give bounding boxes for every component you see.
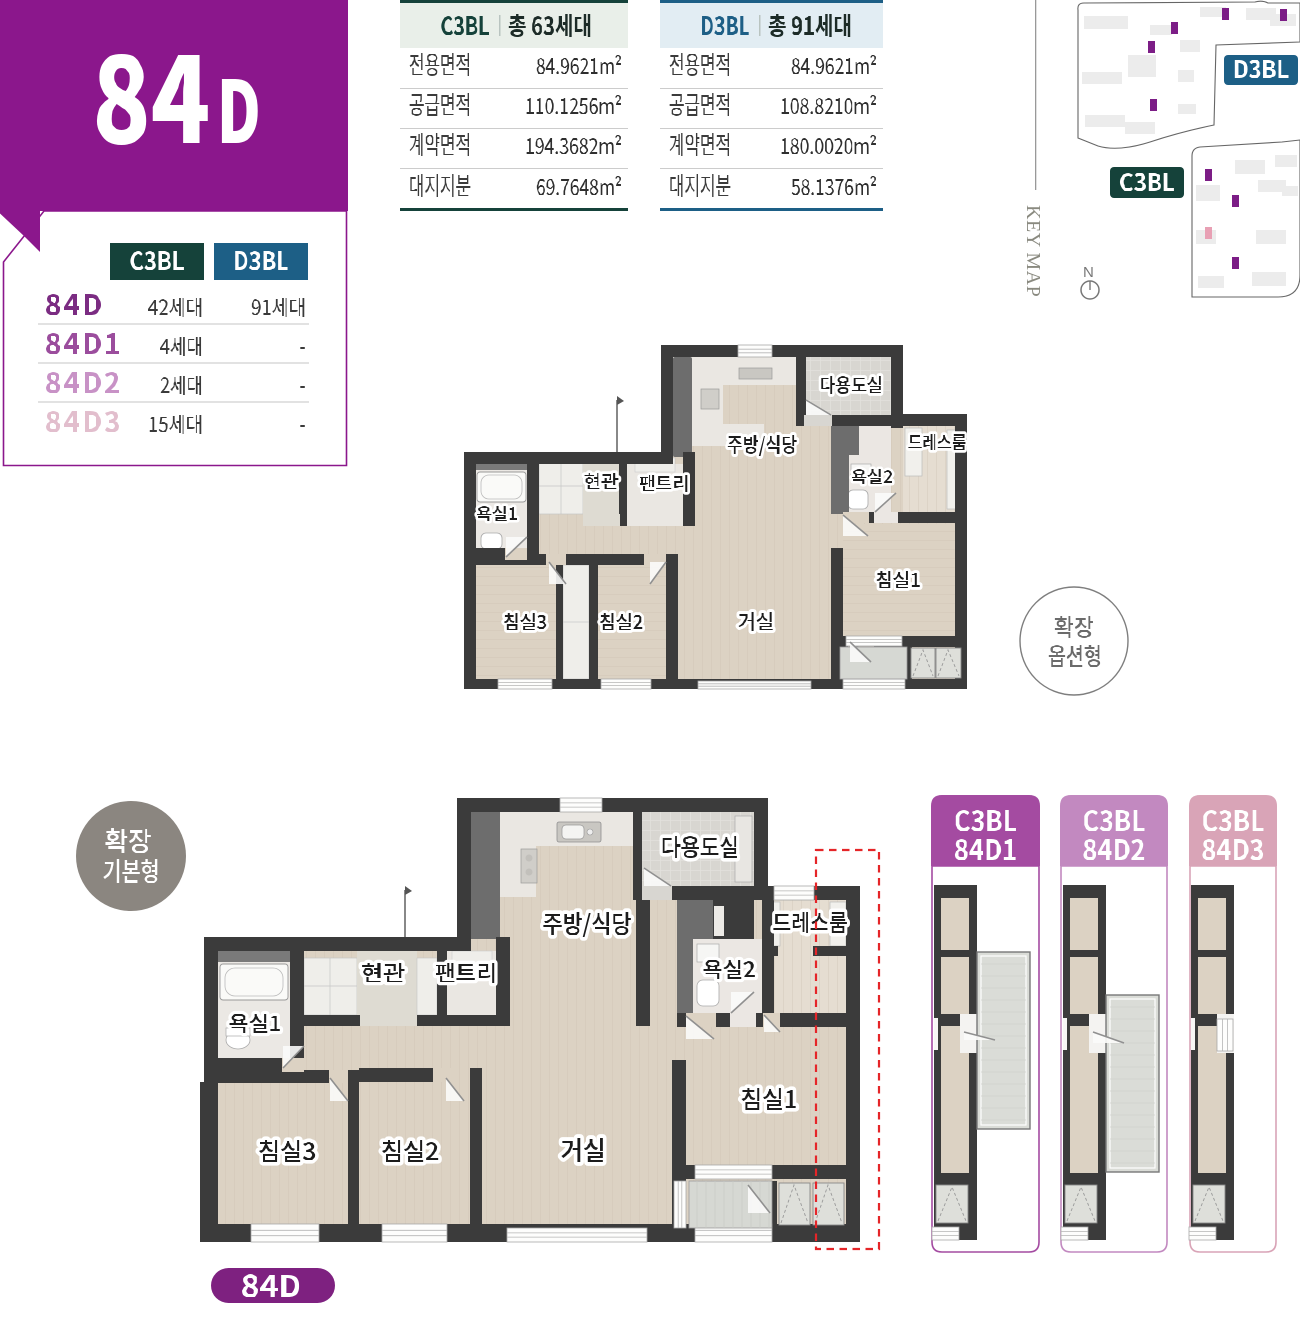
svg-text:N: N [1083, 264, 1094, 281]
svg-text:KEY MAP: KEY MAP [1022, 205, 1044, 297]
